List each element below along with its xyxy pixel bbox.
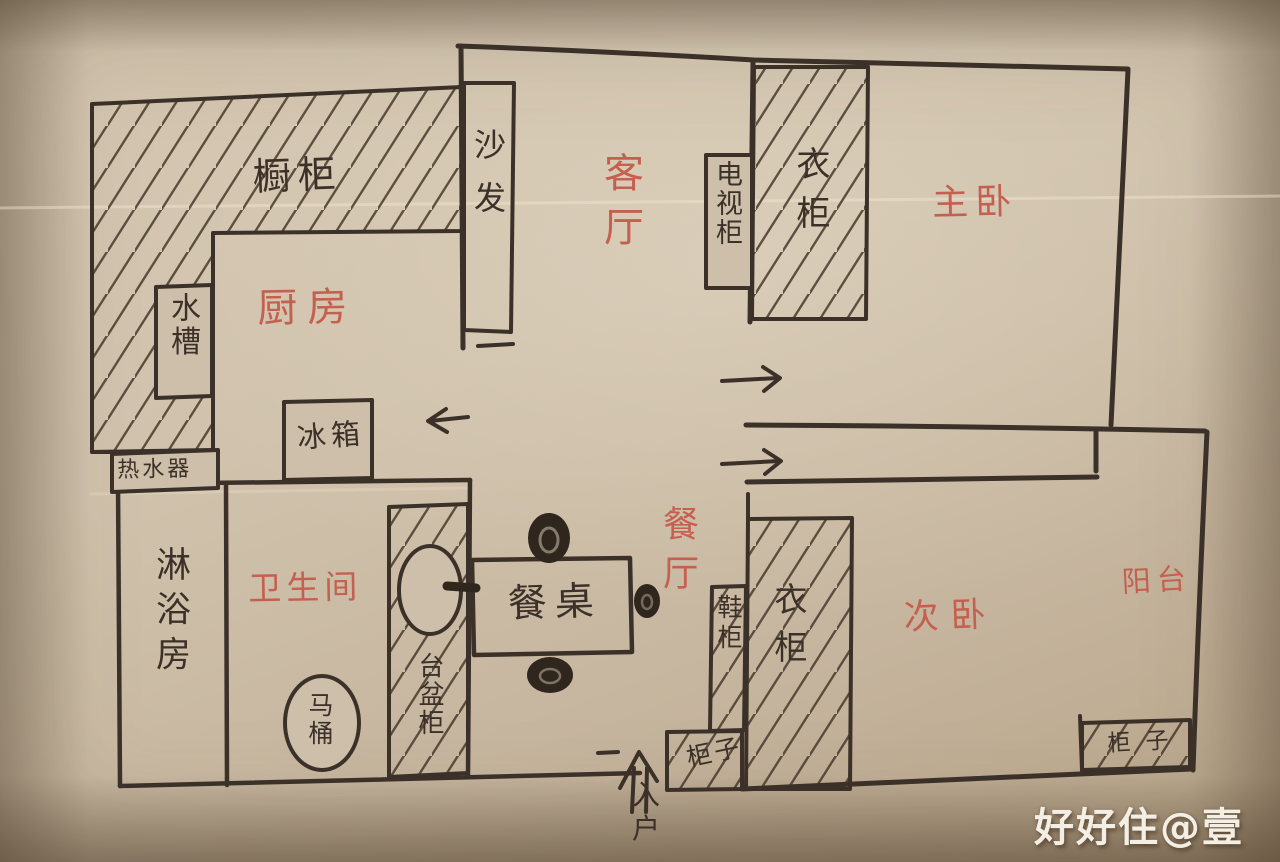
bathroom-right-wall [468, 480, 470, 776]
label-toilet: 马桶 [307, 692, 332, 748]
bathroom-bottom-wall [120, 773, 640, 786]
arrow-left-icon [428, 409, 468, 432]
label-cupboard: 橱柜 [252, 152, 344, 200]
label-kitchen: 厨房 [257, 284, 358, 333]
entry-wall-stub [598, 752, 618, 753]
label-second-wardrobe: 衣柜 [772, 582, 805, 678]
master-right-wall [1111, 70, 1128, 425]
label-second-bedroom: 次卧 [903, 595, 998, 640]
arrow-right-icon [722, 450, 781, 474]
label-basin-cabinet: 台盆柜 [416, 652, 442, 738]
label-master-wardrobe: 衣柜 [793, 146, 827, 245]
balcony-cabinet-stub [1080, 716, 1082, 770]
label-dining-room: 餐厅 [659, 505, 695, 602]
floorplan-drawing [0, 0, 1280, 862]
label-sink: 水槽 [167, 292, 197, 359]
sofa-bottom-tick [478, 344, 513, 346]
master-bottom-wall [746, 425, 1205, 431]
stool-bottom [527, 657, 573, 693]
arrow-right-icon [722, 367, 780, 391]
label-shower-room: 淋浴房 [152, 546, 187, 680]
label-balcony-cabinet: 柜子 [1107, 727, 1184, 758]
label-master-bedroom: 主卧 [932, 181, 1019, 225]
label-bathroom: 卫生间 [248, 568, 363, 609]
stool-top [528, 513, 570, 563]
balcony-right-wall [1193, 432, 1207, 770]
label-water-heater: 热水器 [117, 457, 192, 484]
label-dining-table: 餐桌 [507, 579, 603, 628]
label-tv-cabinet: 电视柜 [713, 160, 740, 247]
label-entrance: 入户 [630, 780, 658, 847]
watermark: 好好住@壹壹 [1034, 795, 1280, 862]
floorplan-sketch-photo: 橱柜 厨房 水槽 热水器 冰箱 沙发 客厅 电视柜 衣柜 主卧 淋浴房 卫生间 … [0, 0, 1280, 862]
basin-faucet [447, 586, 476, 588]
bathroom-left-wall [118, 484, 120, 786]
label-living-room: 客厅 [600, 152, 640, 260]
label-sofa: 沙发 [472, 128, 504, 234]
label-fridge: 冰箱 [296, 416, 366, 455]
label-balcony: 阳台 [1121, 561, 1193, 599]
label-shoe-cabinet: 鞋柜 [716, 594, 741, 654]
kitchen-cupboard-area [92, 87, 462, 452]
shower-divider-wall [226, 484, 227, 785]
second-bedroom-top-wall [747, 477, 1097, 482]
